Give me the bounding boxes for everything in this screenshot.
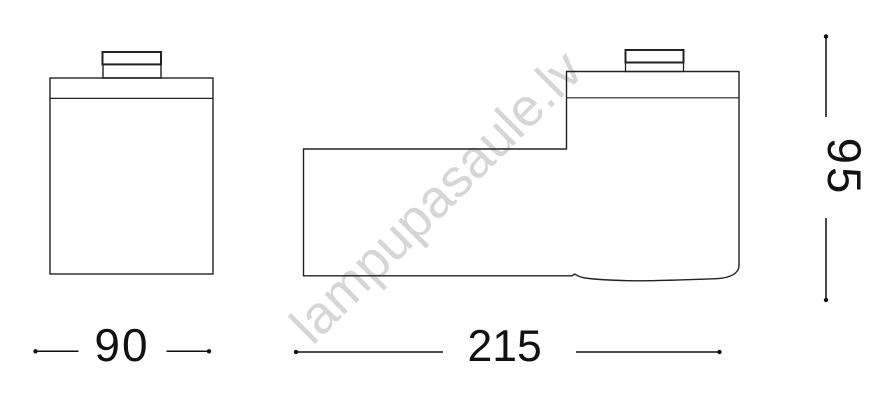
svg-text:215: 215 xyxy=(467,322,541,371)
svg-text:95: 95 xyxy=(817,138,870,197)
svg-text:90: 90 xyxy=(94,319,149,371)
